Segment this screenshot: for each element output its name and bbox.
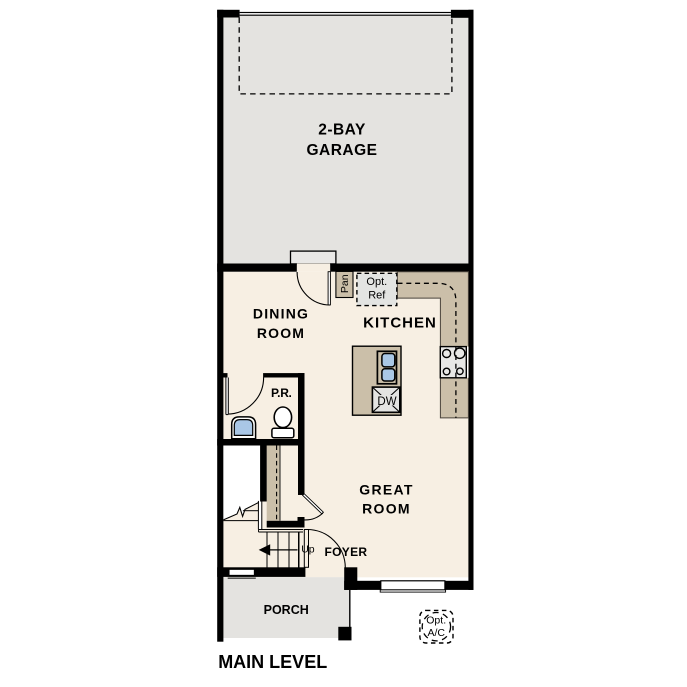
svg-text:2-BAY: 2-BAY	[318, 122, 366, 139]
svg-text:ROOM: ROOM	[362, 501, 411, 517]
svg-text:Opt.: Opt.	[426, 615, 446, 627]
svg-text:FOYER: FOYER	[325, 545, 368, 559]
svg-text:Ref: Ref	[368, 290, 386, 302]
svg-text:GREAT: GREAT	[359, 482, 413, 498]
svg-text:MAIN LEVEL: MAIN LEVEL	[218, 652, 327, 672]
svg-text:Pan: Pan	[339, 274, 351, 293]
svg-text:A/C: A/C	[427, 627, 445, 639]
svg-text:Opt.: Opt.	[366, 276, 387, 288]
svg-text:KITCHEN: KITCHEN	[363, 315, 437, 332]
svg-text:PORCH: PORCH	[264, 603, 309, 617]
svg-text:DW: DW	[377, 396, 396, 408]
svg-text:P.R.: P.R.	[271, 386, 292, 400]
svg-text:ROOM: ROOM	[257, 325, 305, 341]
svg-text:Up: Up	[301, 544, 315, 556]
svg-text:DINING: DINING	[253, 306, 309, 322]
svg-text:GARAGE: GARAGE	[306, 142, 377, 159]
